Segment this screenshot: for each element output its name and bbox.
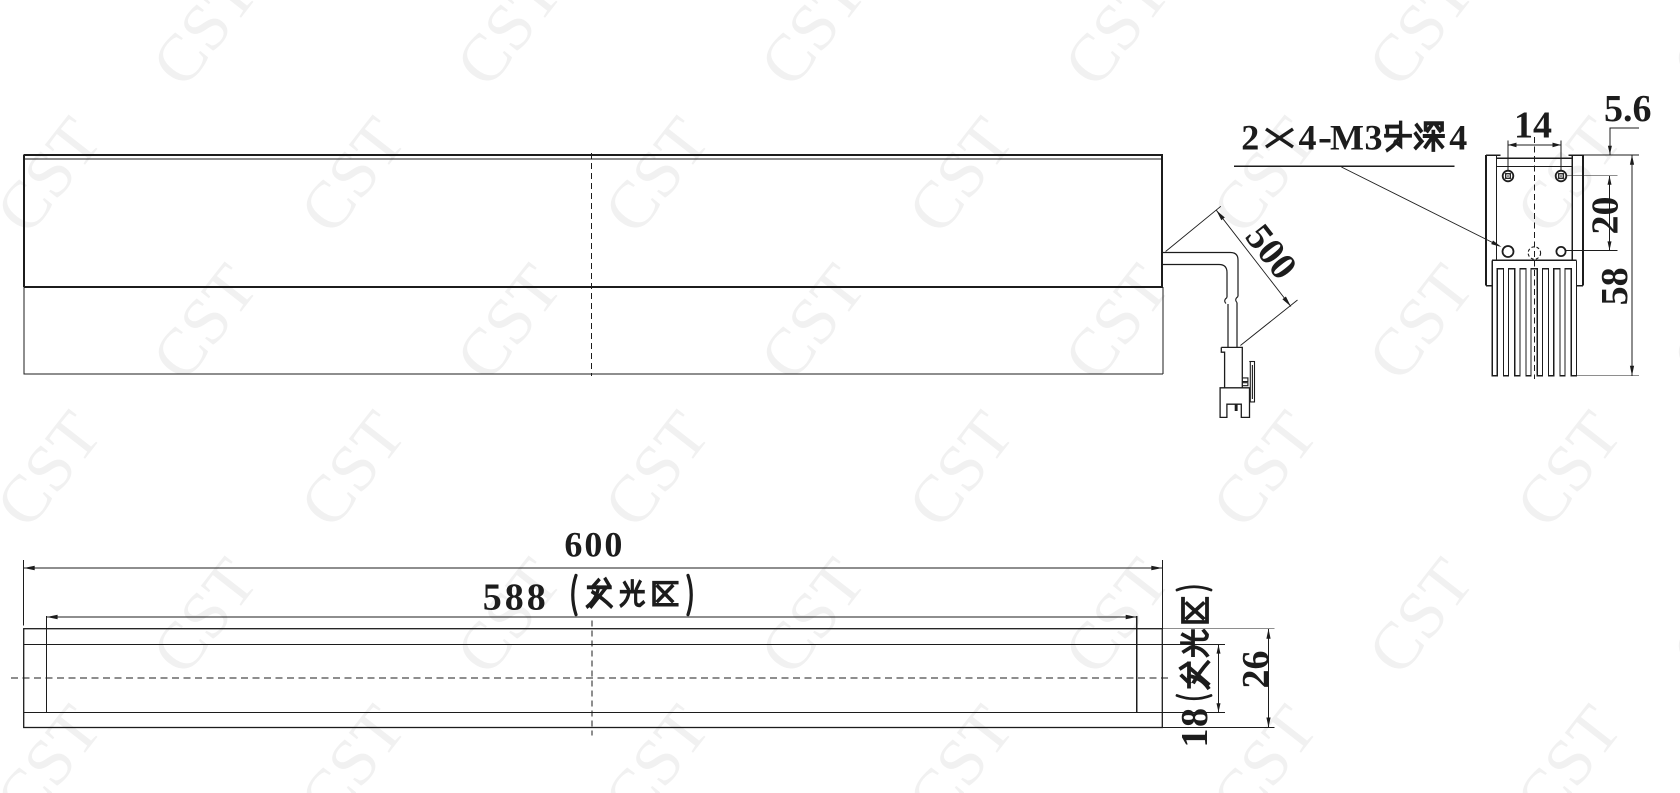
svg-text:3: 3 — [1365, 118, 1383, 158]
svg-text:14: 14 — [1514, 105, 1552, 147]
svg-text:M: M — [1330, 118, 1364, 158]
svg-text:600: 600 — [564, 525, 624, 565]
svg-text:588: 588 — [483, 576, 549, 618]
svg-text:58: 58 — [1594, 267, 1636, 305]
svg-text:5.6: 5.6 — [1604, 88, 1652, 130]
svg-text:2: 2 — [1241, 118, 1259, 158]
svg-text:1: 1 — [1174, 729, 1216, 748]
svg-text:4: 4 — [1449, 118, 1467, 158]
svg-text:4: 4 — [1299, 118, 1317, 158]
svg-text:26: 26 — [1235, 651, 1277, 689]
svg-text:8: 8 — [1174, 708, 1216, 727]
svg-text:20: 20 — [1585, 197, 1627, 235]
